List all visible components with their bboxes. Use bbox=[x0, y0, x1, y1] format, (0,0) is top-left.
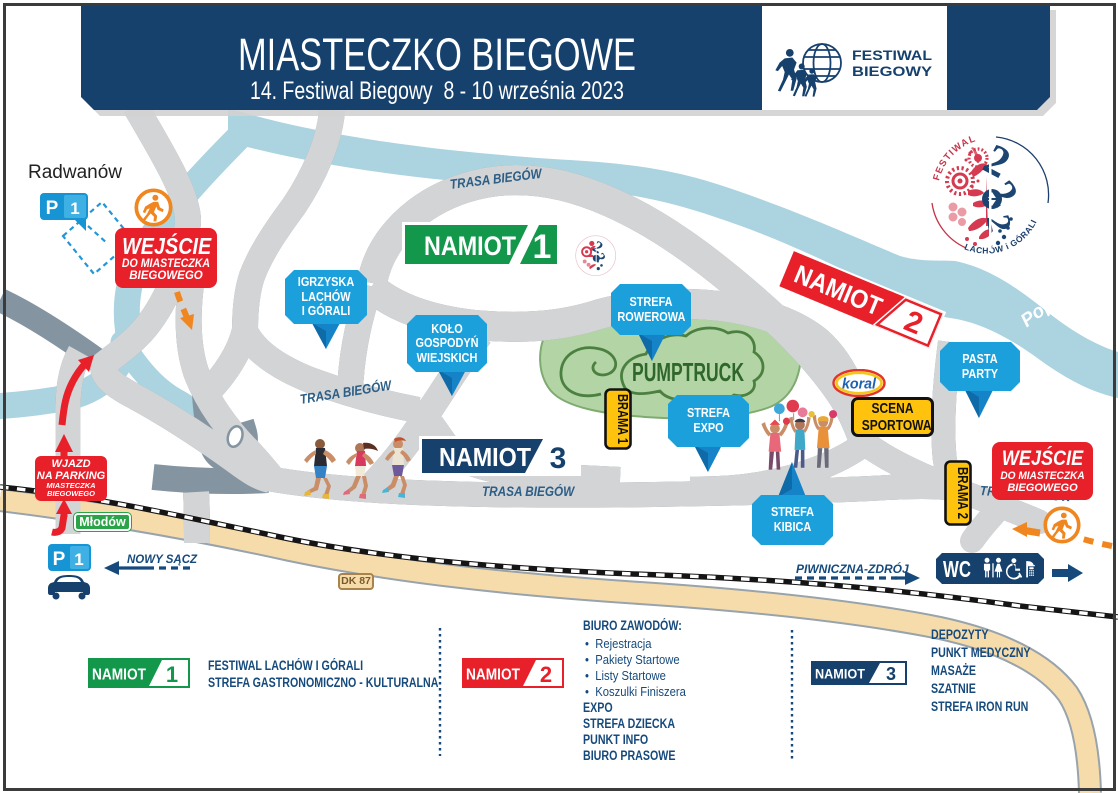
svg-text:1: 1 bbox=[70, 199, 79, 218]
svg-text:BIEGOWY: BIEGOWY bbox=[852, 64, 932, 79]
svg-text:NAMIOT: NAMIOT bbox=[92, 667, 146, 684]
svg-text:1: 1 bbox=[533, 228, 552, 266]
svg-text:2: 2 bbox=[540, 662, 552, 687]
svg-text:NAMIOT: NAMIOT bbox=[439, 442, 531, 472]
svg-text:BRAMA 1: BRAMA 1 bbox=[614, 394, 630, 444]
svg-text:P: P bbox=[53, 549, 66, 570]
svg-text:NAMIOT: NAMIOT bbox=[815, 666, 865, 682]
svg-text:BRAMA 2: BRAMA 2 bbox=[954, 467, 970, 519]
svg-text:NAMIOT: NAMIOT bbox=[424, 231, 516, 261]
svg-text:3: 3 bbox=[886, 664, 896, 684]
svg-text:FESTIWAL: FESTIWAL bbox=[852, 48, 932, 63]
svg-text:14. Festiwal Biegowy 8 - 10 w: 14. Festiwal Biegowy 8 - 10 września 202… bbox=[250, 77, 624, 105]
svg-text:WC: WC bbox=[943, 556, 971, 582]
svg-text:koral: koral bbox=[842, 376, 877, 393]
svg-text:PUMPTRUCK: PUMPTRUCK bbox=[632, 357, 744, 387]
svg-text:3: 3 bbox=[550, 442, 567, 475]
svg-text:P: P bbox=[46, 198, 59, 219]
svg-text:1: 1 bbox=[166, 662, 178, 687]
svg-text:1: 1 bbox=[74, 550, 83, 569]
svg-text:MIASTECZKO BIEGOWE: MIASTECZKO BIEGOWE bbox=[238, 29, 636, 80]
